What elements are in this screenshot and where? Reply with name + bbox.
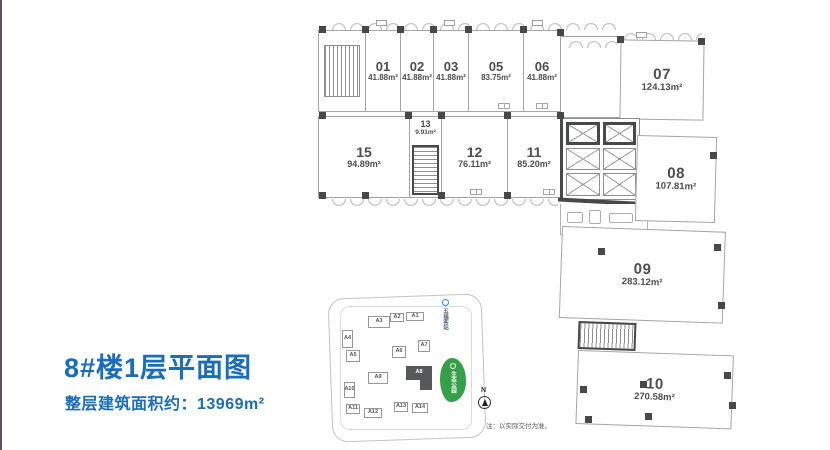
disclaimer-note: 注：以实际交付为准。 bbox=[486, 420, 551, 430]
unit-05-number: 05 bbox=[489, 60, 503, 73]
unit-03-number: 03 bbox=[444, 60, 458, 73]
unit-07-room: 07 124.13m² bbox=[619, 39, 704, 120]
unit-12-area: 76.11m² bbox=[458, 160, 491, 169]
window-arc-strip-bottom bbox=[330, 199, 558, 208]
window-fixture bbox=[470, 189, 482, 195]
column-marker bbox=[557, 112, 564, 119]
column-marker bbox=[724, 372, 731, 379]
column-marker bbox=[362, 26, 369, 33]
column-marker bbox=[438, 112, 445, 119]
unit-08-number: 08 bbox=[667, 166, 685, 181]
column-marker bbox=[585, 416, 592, 423]
building-a4: A4 bbox=[342, 330, 353, 348]
column-marker bbox=[714, 244, 721, 251]
site-map: A3 A2 A1 A4 A5 A6 A7 A9 A10 A8 A11 A12 A… bbox=[328, 292, 488, 444]
column-marker bbox=[640, 381, 647, 388]
unit-09-number: 09 bbox=[633, 262, 651, 278]
column-marker bbox=[710, 152, 717, 159]
unit-10-room: 10 270.58m² bbox=[575, 350, 733, 429]
column-marker bbox=[504, 192, 511, 199]
building-a9: A9 bbox=[368, 372, 388, 384]
elevator-core bbox=[560, 118, 640, 200]
unit-08-area: 107.81m² bbox=[655, 182, 696, 193]
column-marker bbox=[319, 112, 326, 119]
column-marker bbox=[465, 26, 472, 33]
stairwell-west bbox=[318, 30, 366, 112]
building-a7: A7 bbox=[418, 340, 430, 352]
unit-06-room: 06 41.88m² bbox=[523, 30, 561, 112]
column-marker bbox=[617, 36, 624, 43]
unit-12-number: 12 bbox=[467, 145, 483, 159]
restroom-fixture bbox=[589, 210, 601, 224]
door-arc-strip bbox=[567, 39, 617, 48]
stair-treads bbox=[324, 45, 360, 97]
station-label: 五福客站 bbox=[442, 308, 448, 330]
unit-13-number: 13 bbox=[420, 120, 430, 129]
building-a13: A13 bbox=[394, 402, 408, 412]
window-fixture bbox=[498, 103, 510, 109]
unit-11-room: 11 85.20m² bbox=[507, 116, 561, 198]
compass-n-label: N bbox=[481, 387, 486, 394]
elevator-shaft bbox=[603, 148, 637, 171]
column-marker bbox=[645, 413, 652, 420]
floor-area-subtitle: 整层建筑面积约：13969m² bbox=[65, 390, 265, 414]
unit-07-number: 07 bbox=[653, 67, 671, 82]
building-a11: A11 bbox=[346, 404, 360, 414]
column-marker bbox=[580, 386, 587, 393]
building-a6: A6 bbox=[392, 346, 406, 358]
page-title: 8#楼1层平面图 bbox=[64, 346, 252, 385]
column-marker bbox=[397, 26, 404, 33]
column-marker bbox=[438, 192, 445, 199]
window-fixture bbox=[536, 103, 548, 109]
window-fixture bbox=[543, 189, 555, 195]
unit-03-area: 41.88m² bbox=[436, 74, 466, 82]
column-marker bbox=[520, 26, 527, 33]
north-compass-icon bbox=[478, 396, 491, 409]
unit-09-room: 09 283.12m² bbox=[559, 226, 726, 324]
door-tag bbox=[376, 20, 387, 26]
window-arc-strip-top bbox=[330, 21, 618, 30]
unit-05-area: 83.75m² bbox=[481, 74, 511, 82]
elevator-shaft bbox=[566, 148, 600, 171]
column-marker bbox=[319, 192, 326, 199]
park-icon bbox=[450, 363, 456, 369]
unit-02-area: 41.88m² bbox=[402, 74, 432, 82]
unit-08-room: 08 107.81m² bbox=[635, 135, 717, 223]
building-a10: A10 bbox=[344, 382, 355, 398]
unit-06-area: 41.88m² bbox=[527, 74, 557, 82]
compass-needle bbox=[482, 399, 488, 406]
unit-06-number: 06 bbox=[535, 60, 549, 73]
column-marker bbox=[319, 26, 326, 33]
elevator-shaft bbox=[566, 173, 600, 196]
park-label: 生态公园 bbox=[450, 371, 456, 393]
unit-13-room: 13 9.91m² bbox=[409, 116, 442, 198]
unit-02-room: 02 41.88m² bbox=[400, 30, 434, 112]
restroom-fixture bbox=[609, 213, 633, 223]
unit-01-area: 41.88m² bbox=[368, 74, 398, 82]
column-marker bbox=[718, 302, 725, 309]
building-a2: A2 bbox=[390, 313, 404, 322]
unit-02-number: 02 bbox=[410, 60, 424, 73]
building-a14: A14 bbox=[412, 403, 428, 413]
unit-01-number: 01 bbox=[376, 60, 390, 73]
column-marker bbox=[729, 402, 736, 409]
eco-park: 生态公园 bbox=[440, 358, 466, 402]
building-a5: A5 bbox=[346, 350, 360, 362]
door-tag bbox=[444, 20, 455, 26]
column-marker bbox=[504, 112, 511, 119]
unit-15-number: 15 bbox=[356, 145, 372, 159]
restroom-fixture bbox=[567, 212, 583, 223]
entrance-lobby bbox=[560, 36, 622, 118]
building-a12: A12 bbox=[364, 408, 382, 418]
column-marker bbox=[698, 38, 705, 45]
column-marker bbox=[430, 26, 437, 33]
unit-15-room: 15 94.89m² bbox=[318, 116, 410, 198]
unit-07-area: 124.13m² bbox=[641, 83, 682, 93]
unit-12-room: 12 76.11m² bbox=[441, 116, 508, 198]
elevator-shaft bbox=[603, 122, 637, 145]
station-icon bbox=[442, 299, 449, 306]
unit-03-room: 03 41.88m² bbox=[433, 30, 469, 112]
column-marker bbox=[405, 112, 412, 119]
screenshot-left-border bbox=[0, 0, 2, 450]
door-tag bbox=[636, 32, 647, 38]
door-tag bbox=[532, 20, 543, 26]
building-a8-highlighted: A8 bbox=[406, 366, 432, 380]
building-a1: A1 bbox=[406, 312, 424, 321]
unit-11-area: 85.20m² bbox=[517, 160, 551, 169]
unit-10-number: 10 bbox=[646, 377, 664, 393]
column-marker bbox=[598, 248, 605, 255]
unit-11-number: 11 bbox=[527, 145, 542, 159]
unit-13-area: 9.91m² bbox=[415, 130, 436, 137]
building-a3: A3 bbox=[368, 316, 390, 328]
stairwell-unit13 bbox=[412, 145, 439, 195]
unit-01-room: 01 41.88m² bbox=[365, 30, 401, 112]
unit-09-area: 283.12m² bbox=[622, 277, 663, 288]
unit-05-room: 05 83.75m² bbox=[468, 30, 524, 112]
elevator-shaft bbox=[603, 173, 637, 196]
unit-10-area: 270.58m² bbox=[634, 392, 675, 403]
building-a8-wing bbox=[420, 380, 432, 390]
elevator-shaft bbox=[566, 122, 600, 145]
column-marker bbox=[362, 192, 369, 199]
column-marker bbox=[557, 29, 564, 36]
stairwell-south bbox=[578, 321, 637, 351]
unit-15-area: 94.89m² bbox=[347, 160, 381, 169]
